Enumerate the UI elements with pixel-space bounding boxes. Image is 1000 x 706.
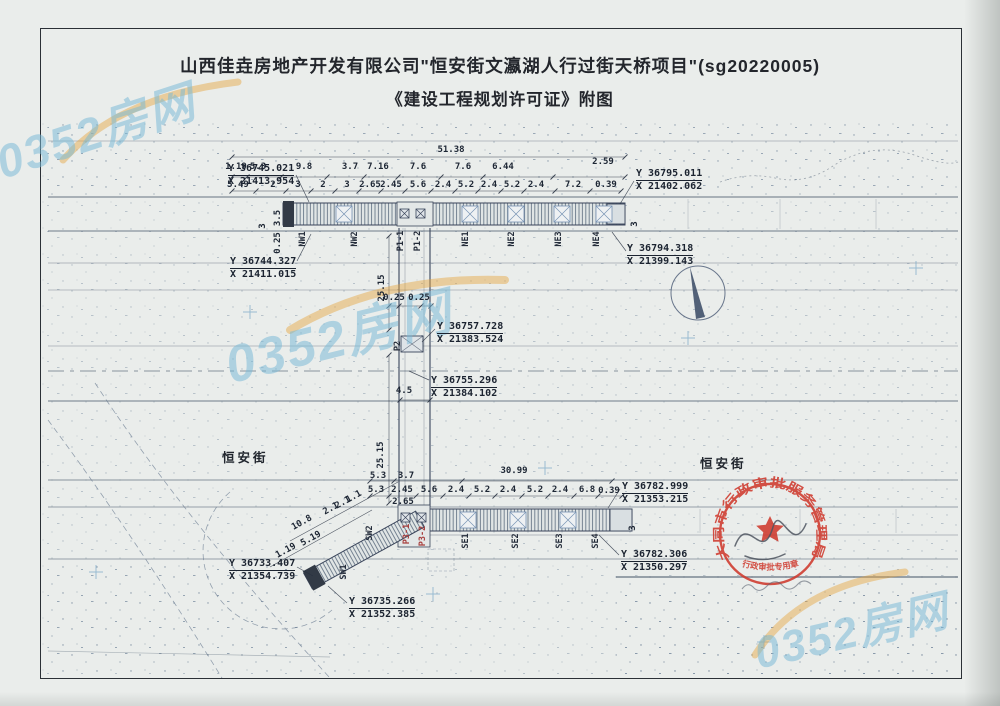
scan-edge-shadow <box>964 0 1000 706</box>
pedestrian-bridge-north <box>283 201 625 227</box>
ground-stipple-texture <box>42 118 958 675</box>
scan-bottom-shadow <box>0 692 1000 706</box>
scanned-blueprint-sheet: 大同市行政审批服务管理局 行政审批专用章 山西佳垚房地产开发有限公司"恒安街文瀛… <box>0 0 1000 706</box>
bridge-end-cap <box>283 201 294 227</box>
document-title-line2: 《建设工程规划许可证》附图 <box>40 86 960 110</box>
document-title-line1: 山西佳垚房地产开发有限公司"恒安街文瀛湖人行过街天桥项目"(sg20220005… <box>40 53 960 78</box>
